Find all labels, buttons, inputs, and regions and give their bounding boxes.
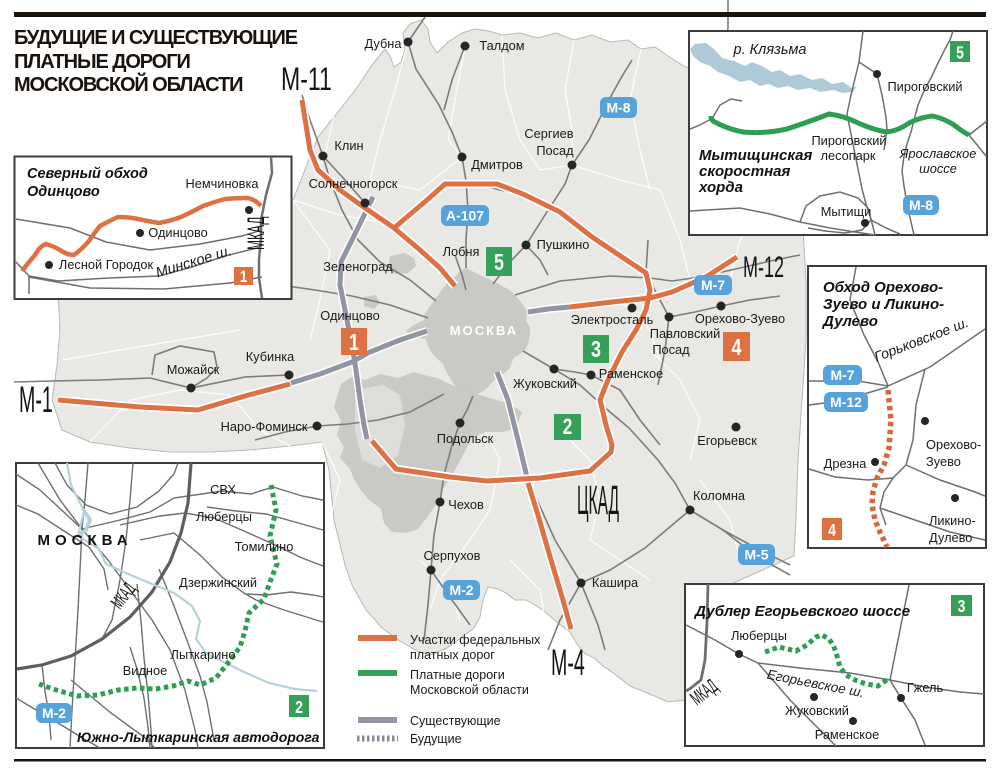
svg-text:Лыткарино: Лыткарино [171,647,236,662]
svg-text:1: 1 [240,268,248,287]
svg-text:Жуковский: Жуковский [785,703,849,718]
svg-text:Пироговский: Пироговский [887,79,962,94]
svg-text:5: 5 [494,250,504,276]
svg-text:хорда: хорда [698,179,743,196]
svg-text:Кашира: Кашира [592,575,639,590]
svg-text:Орехово-: Орехово- [926,437,981,452]
svg-text:Лесной Городок: Лесной Городок [59,257,154,272]
svg-text:А-107: А-107 [446,208,484,224]
svg-text:Раменское: Раменское [599,366,664,381]
svg-text:Ликино-: Ликино- [929,513,976,528]
svg-text:скоростная: скоростная [699,163,791,180]
svg-text:2: 2 [563,415,573,440]
svg-text:4: 4 [732,335,742,361]
svg-text:Подольск: Подольск [437,431,494,446]
svg-text:Пушкино: Пушкино [537,237,590,252]
svg-text:Будущие: Будущие [410,732,462,746]
svg-text:лесопарк: лесопарк [820,148,875,163]
svg-text:шоссе: шоссе [919,161,957,176]
svg-text:Посад: Посад [652,342,690,357]
svg-text:М-2: М-2 [42,705,66,721]
svg-text:4: 4 [828,520,836,540]
svg-text:платных дорог: платных дорог [410,648,495,662]
svg-text:1: 1 [349,330,359,356]
svg-text:М-1: М-1 [19,380,53,421]
svg-text:Клин: Клин [334,138,363,153]
svg-text:Коломна: Коломна [693,488,746,503]
svg-text:Московской области: Московской области [410,683,529,697]
svg-text:М-8: М-8 [606,100,630,116]
svg-text:Зуево: Зуево [926,454,961,469]
svg-text:ЦКАД: ЦКАД [577,477,619,523]
svg-text:Люберцы: Люберцы [731,628,787,643]
svg-text:Дзержинский: Дзержинский [179,575,257,590]
svg-text:М-12: М-12 [830,394,862,410]
svg-text:Дулево: Дулево [821,313,878,330]
svg-text:Дулево: Дулево [929,530,972,545]
svg-text:Томилино: Томилино [235,539,294,554]
svg-text:Сергиев: Сергиев [524,126,573,141]
svg-text:Павловский: Павловский [650,326,721,341]
svg-text:МОСКВА: МОСКВА [37,532,132,549]
svg-text:Электросталь: Электросталь [571,312,654,327]
svg-text:Одинцово: Одинцово [27,184,100,200]
svg-text:СВХ: СВХ [210,482,236,497]
svg-text:Ярославское: Ярославское [899,146,977,161]
svg-text:Платные дороги: Платные дороги [410,668,505,682]
svg-text:Одинцово: Одинцово [320,308,379,323]
svg-text:М-4: М-4 [551,643,585,684]
svg-text:Жуковский: Жуковский [513,376,577,391]
svg-text:Талдом: Талдом [479,38,524,53]
svg-text:Пироговский: Пироговский [811,133,886,148]
svg-text:Зуево и Ликино-: Зуево и Ликино- [823,296,944,313]
svg-text:5: 5 [956,43,964,63]
svg-text:3: 3 [591,337,601,363]
svg-text:МОСКОВСКОЙ ОБЛАСТИ: МОСКОВСКОЙ ОБЛАСТИ [14,72,243,96]
svg-text:3: 3 [958,596,966,616]
svg-text:Люберцы: Люберцы [196,509,252,524]
svg-text:Видное: Видное [123,663,167,678]
svg-text:Кубинка: Кубинка [246,349,295,364]
svg-text:Можайск: Можайск [167,362,220,377]
svg-text:Одинцово: Одинцово [148,225,207,240]
svg-text:М-8: М-8 [909,197,933,213]
svg-text:Дубна: Дубна [364,36,402,51]
svg-text:Чехов: Чехов [448,497,484,512]
svg-text:Участки федеральных: Участки федеральных [410,633,541,647]
svg-text:Обход Орехово-: Обход Орехово- [823,279,943,296]
svg-text:Орехово-Зуево: Орехово-Зуево [695,311,785,326]
svg-text:Северный обход: Северный обход [27,166,148,182]
svg-text:Лобня: Лобня [443,244,480,259]
svg-text:МОСКВА: МОСКВА [450,323,518,338]
svg-text:М-11: М-11 [281,61,332,97]
svg-text:2: 2 [295,697,303,717]
svg-text:ПЛАТНЫЕ ДОРОГИ: ПЛАТНЫЕ ДОРОГИ [14,51,190,73]
svg-text:Дрезна: Дрезна [824,456,868,471]
svg-text:Зеленоград: Зеленоград [323,259,393,274]
svg-text:Раменское: Раменское [815,727,880,742]
svg-text:Дублер Егорьевского шоссе: Дублер Егорьевского шоссе [693,603,910,620]
svg-text:Дмитров: Дмитров [471,157,523,172]
svg-text:Существующие: Существующие [410,714,501,728]
svg-text:БУДУЩИЕ И СУЩЕСТВУЮЩИЕ: БУДУЩИЕ И СУЩЕСТВУЮЩИЕ [14,27,298,49]
svg-text:М-12: М-12 [743,252,784,285]
svg-text:М-2: М-2 [449,582,473,598]
svg-text:Мытищи: Мытищи [821,204,872,219]
svg-text:МКАД: МКАД [244,216,271,250]
svg-text:Южно-Лыткаринская автодорога: Южно-Лыткаринская автодорога [77,729,320,745]
svg-text:Мытищинская: Мытищинская [699,147,813,164]
svg-text:М-7: М-7 [701,277,725,293]
svg-text:Немчиновка: Немчиновка [186,176,260,191]
svg-text:Солнечногорск: Солнечногорск [309,176,398,191]
svg-text:Наро-Фоминск: Наро-Фоминск [221,419,308,434]
svg-text:р. Клязьма: р. Клязьма [733,42,807,58]
svg-text:М-5: М-5 [744,547,768,563]
svg-text:Серпухов: Серпухов [424,548,481,563]
svg-text:Егорьевск: Егорьевск [697,433,757,448]
svg-text:Гжель: Гжель [907,680,944,695]
svg-text:М-7: М-7 [830,367,854,383]
svg-text:Посад: Посад [536,143,574,158]
